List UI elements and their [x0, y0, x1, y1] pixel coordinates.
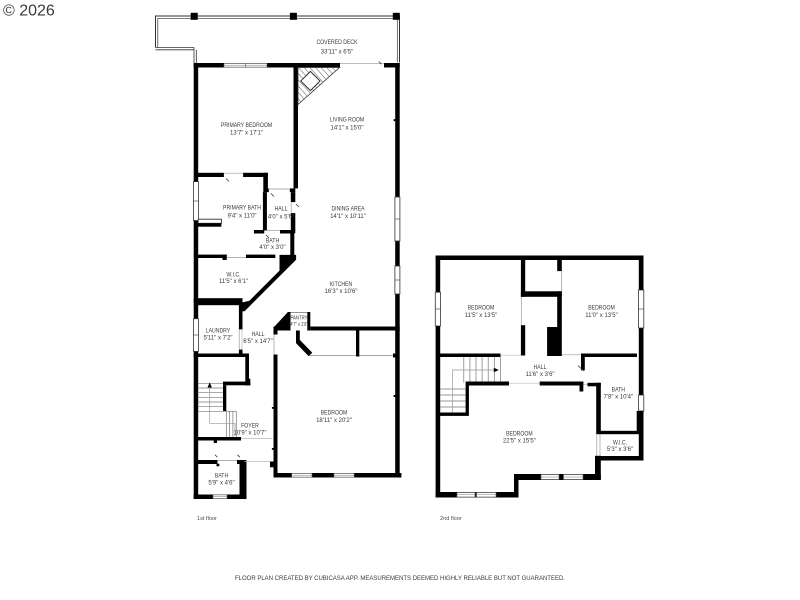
svg-text:13'7" x 17'1": 13'7" x 17'1" [230, 130, 263, 136]
svg-text:DINING AREA: DINING AREA [331, 206, 364, 213]
svg-text:BEDROOM: BEDROOM [506, 431, 533, 438]
svg-text:BEDROOM: BEDROOM [588, 305, 615, 312]
svg-text:PRIMARY BEDROOM: PRIMARY BEDROOM [221, 123, 272, 130]
svg-text:4'0" x 3'0": 4'0" x 3'0" [259, 245, 285, 251]
svg-text:FLOOR PLAN CREATED BY CUBICASA: FLOOR PLAN CREATED BY CUBICASA APP. MEAS… [235, 576, 565, 582]
svg-text:22'5" x 15'5": 22'5" x 15'5" [503, 439, 536, 445]
svg-text:14'1" x 15'0": 14'1" x 15'0" [331, 126, 364, 132]
svg-text:© 2026: © 2026 [3, 3, 55, 20]
svg-text:14'1" x 10'11": 14'1" x 10'11" [330, 214, 366, 220]
svg-text:FOYER: FOYER [241, 423, 259, 430]
svg-text:W.I.C.: W.I.C. [227, 272, 241, 279]
svg-text:4'7" x 1'9": 4'7" x 1'9" [290, 322, 308, 328]
svg-text:4'0" x 5'6": 4'0" x 5'6" [268, 215, 294, 221]
svg-text:33'11" x 6'5": 33'11" x 6'5" [321, 49, 353, 55]
svg-text:6'5" x 14'7": 6'5" x 14'7" [243, 339, 273, 345]
svg-text:LAUNDRY: LAUNDRY [206, 328, 231, 335]
svg-text:HALL: HALL [275, 206, 288, 213]
svg-text:2nd floor: 2nd floor [440, 516, 462, 522]
svg-text:11'5" x 6'1": 11'5" x 6'1" [219, 279, 248, 285]
svg-text:BATH: BATH [266, 238, 279, 245]
svg-text:W.I.C.: W.I.C. [613, 440, 627, 447]
svg-text:11'0" x 13'5": 11'0" x 13'5" [585, 313, 617, 319]
svg-text:18'11" x 20'2": 18'11" x 20'2" [316, 418, 352, 424]
svg-text:KITCHEN: KITCHEN [330, 282, 353, 289]
svg-text:11'5" x 13'5": 11'5" x 13'5" [465, 313, 497, 319]
svg-text:10'9" x 10'7": 10'9" x 10'7" [234, 431, 267, 437]
svg-text:PRIMARY BATH: PRIMARY BATH [223, 205, 261, 212]
svg-text:BEDROOM: BEDROOM [321, 410, 348, 417]
svg-text:11'6" x 3'6": 11'6" x 3'6" [525, 372, 554, 378]
svg-text:BATH: BATH [215, 473, 228, 480]
svg-text:HALL: HALL [534, 365, 547, 372]
svg-text:COVERED DECK: COVERED DECK [316, 40, 357, 47]
svg-text:BATH: BATH [612, 387, 625, 394]
svg-text:9'4" x 11'0": 9'4" x 11'0" [227, 214, 256, 220]
svg-text:5'9" x 4'6": 5'9" x 4'6" [208, 481, 234, 487]
svg-text:LIVING ROOM: LIVING ROOM [330, 117, 364, 124]
svg-text:BEDROOM: BEDROOM [468, 305, 495, 312]
svg-text:5'3" x 3'6": 5'3" x 3'6" [607, 447, 633, 453]
svg-text:1st floor: 1st floor [197, 516, 217, 522]
svg-text:16'3" x 10'6": 16'3" x 10'6" [325, 289, 358, 295]
svg-text:5'11" x 7'2": 5'11" x 7'2" [203, 336, 232, 342]
svg-text:7'8" x 10'4": 7'8" x 10'4" [604, 394, 634, 400]
svg-text:HALL: HALL [252, 331, 265, 338]
